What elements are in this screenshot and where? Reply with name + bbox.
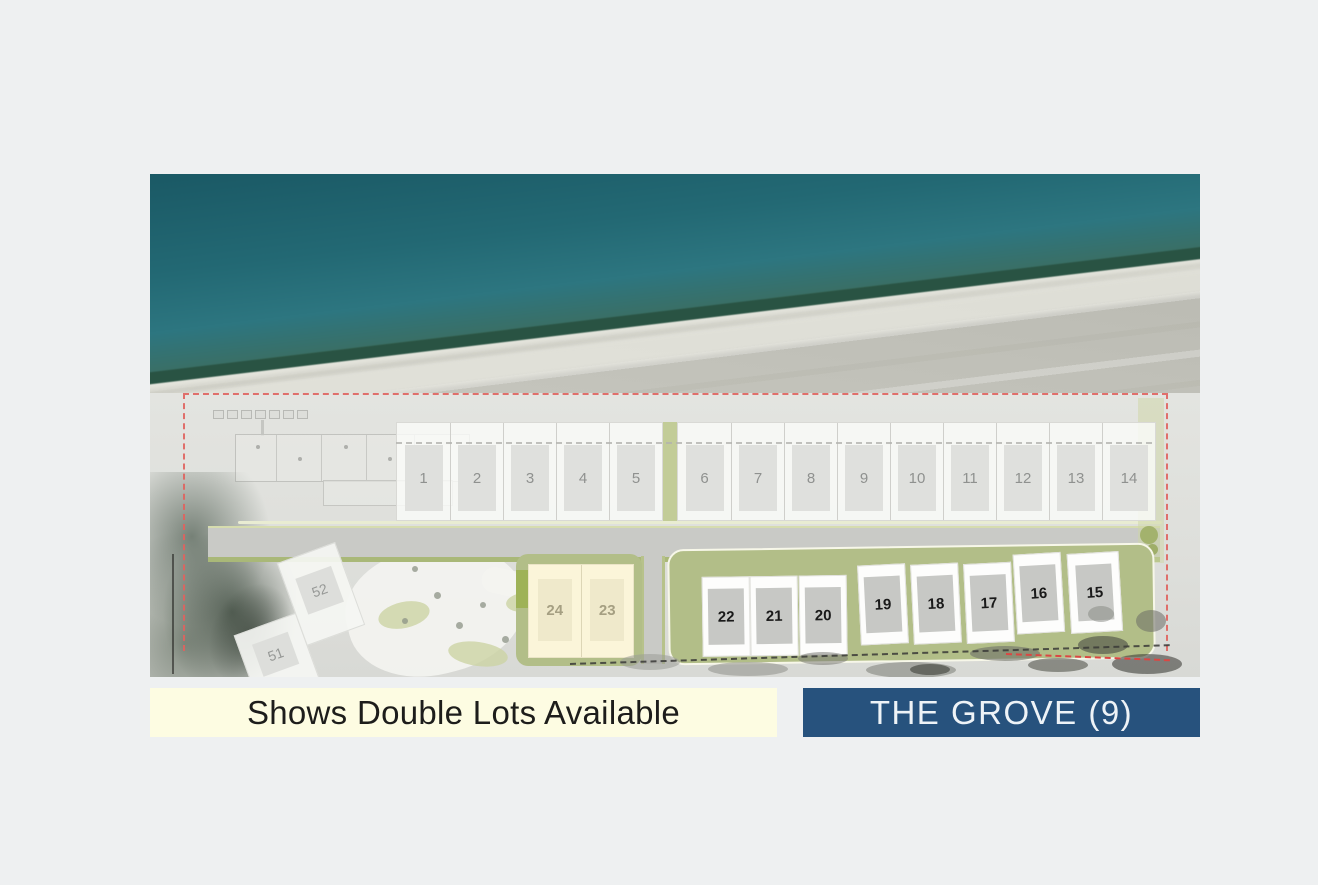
survey-line — [172, 554, 174, 674]
legend-double-lots-label: Shows Double Lots Available — [247, 694, 680, 732]
rock — [1028, 658, 1088, 672]
aerial-photo — [150, 174, 1200, 395]
rock — [910, 664, 950, 675]
site-plan-map: 1 2 3 4 5 6 7 8 9 10 11 12 13 14 — [150, 174, 1200, 677]
legend-double-lots: Shows Double Lots Available — [150, 688, 777, 737]
property-boundary-dashed — [183, 393, 1168, 651]
legend-grove: THE GROVE (9) — [803, 688, 1200, 737]
rock — [708, 662, 788, 676]
legend-grove-label: THE GROVE (9) — [870, 694, 1133, 732]
page: 1 2 3 4 5 6 7 8 9 10 11 12 13 14 — [0, 0, 1318, 885]
